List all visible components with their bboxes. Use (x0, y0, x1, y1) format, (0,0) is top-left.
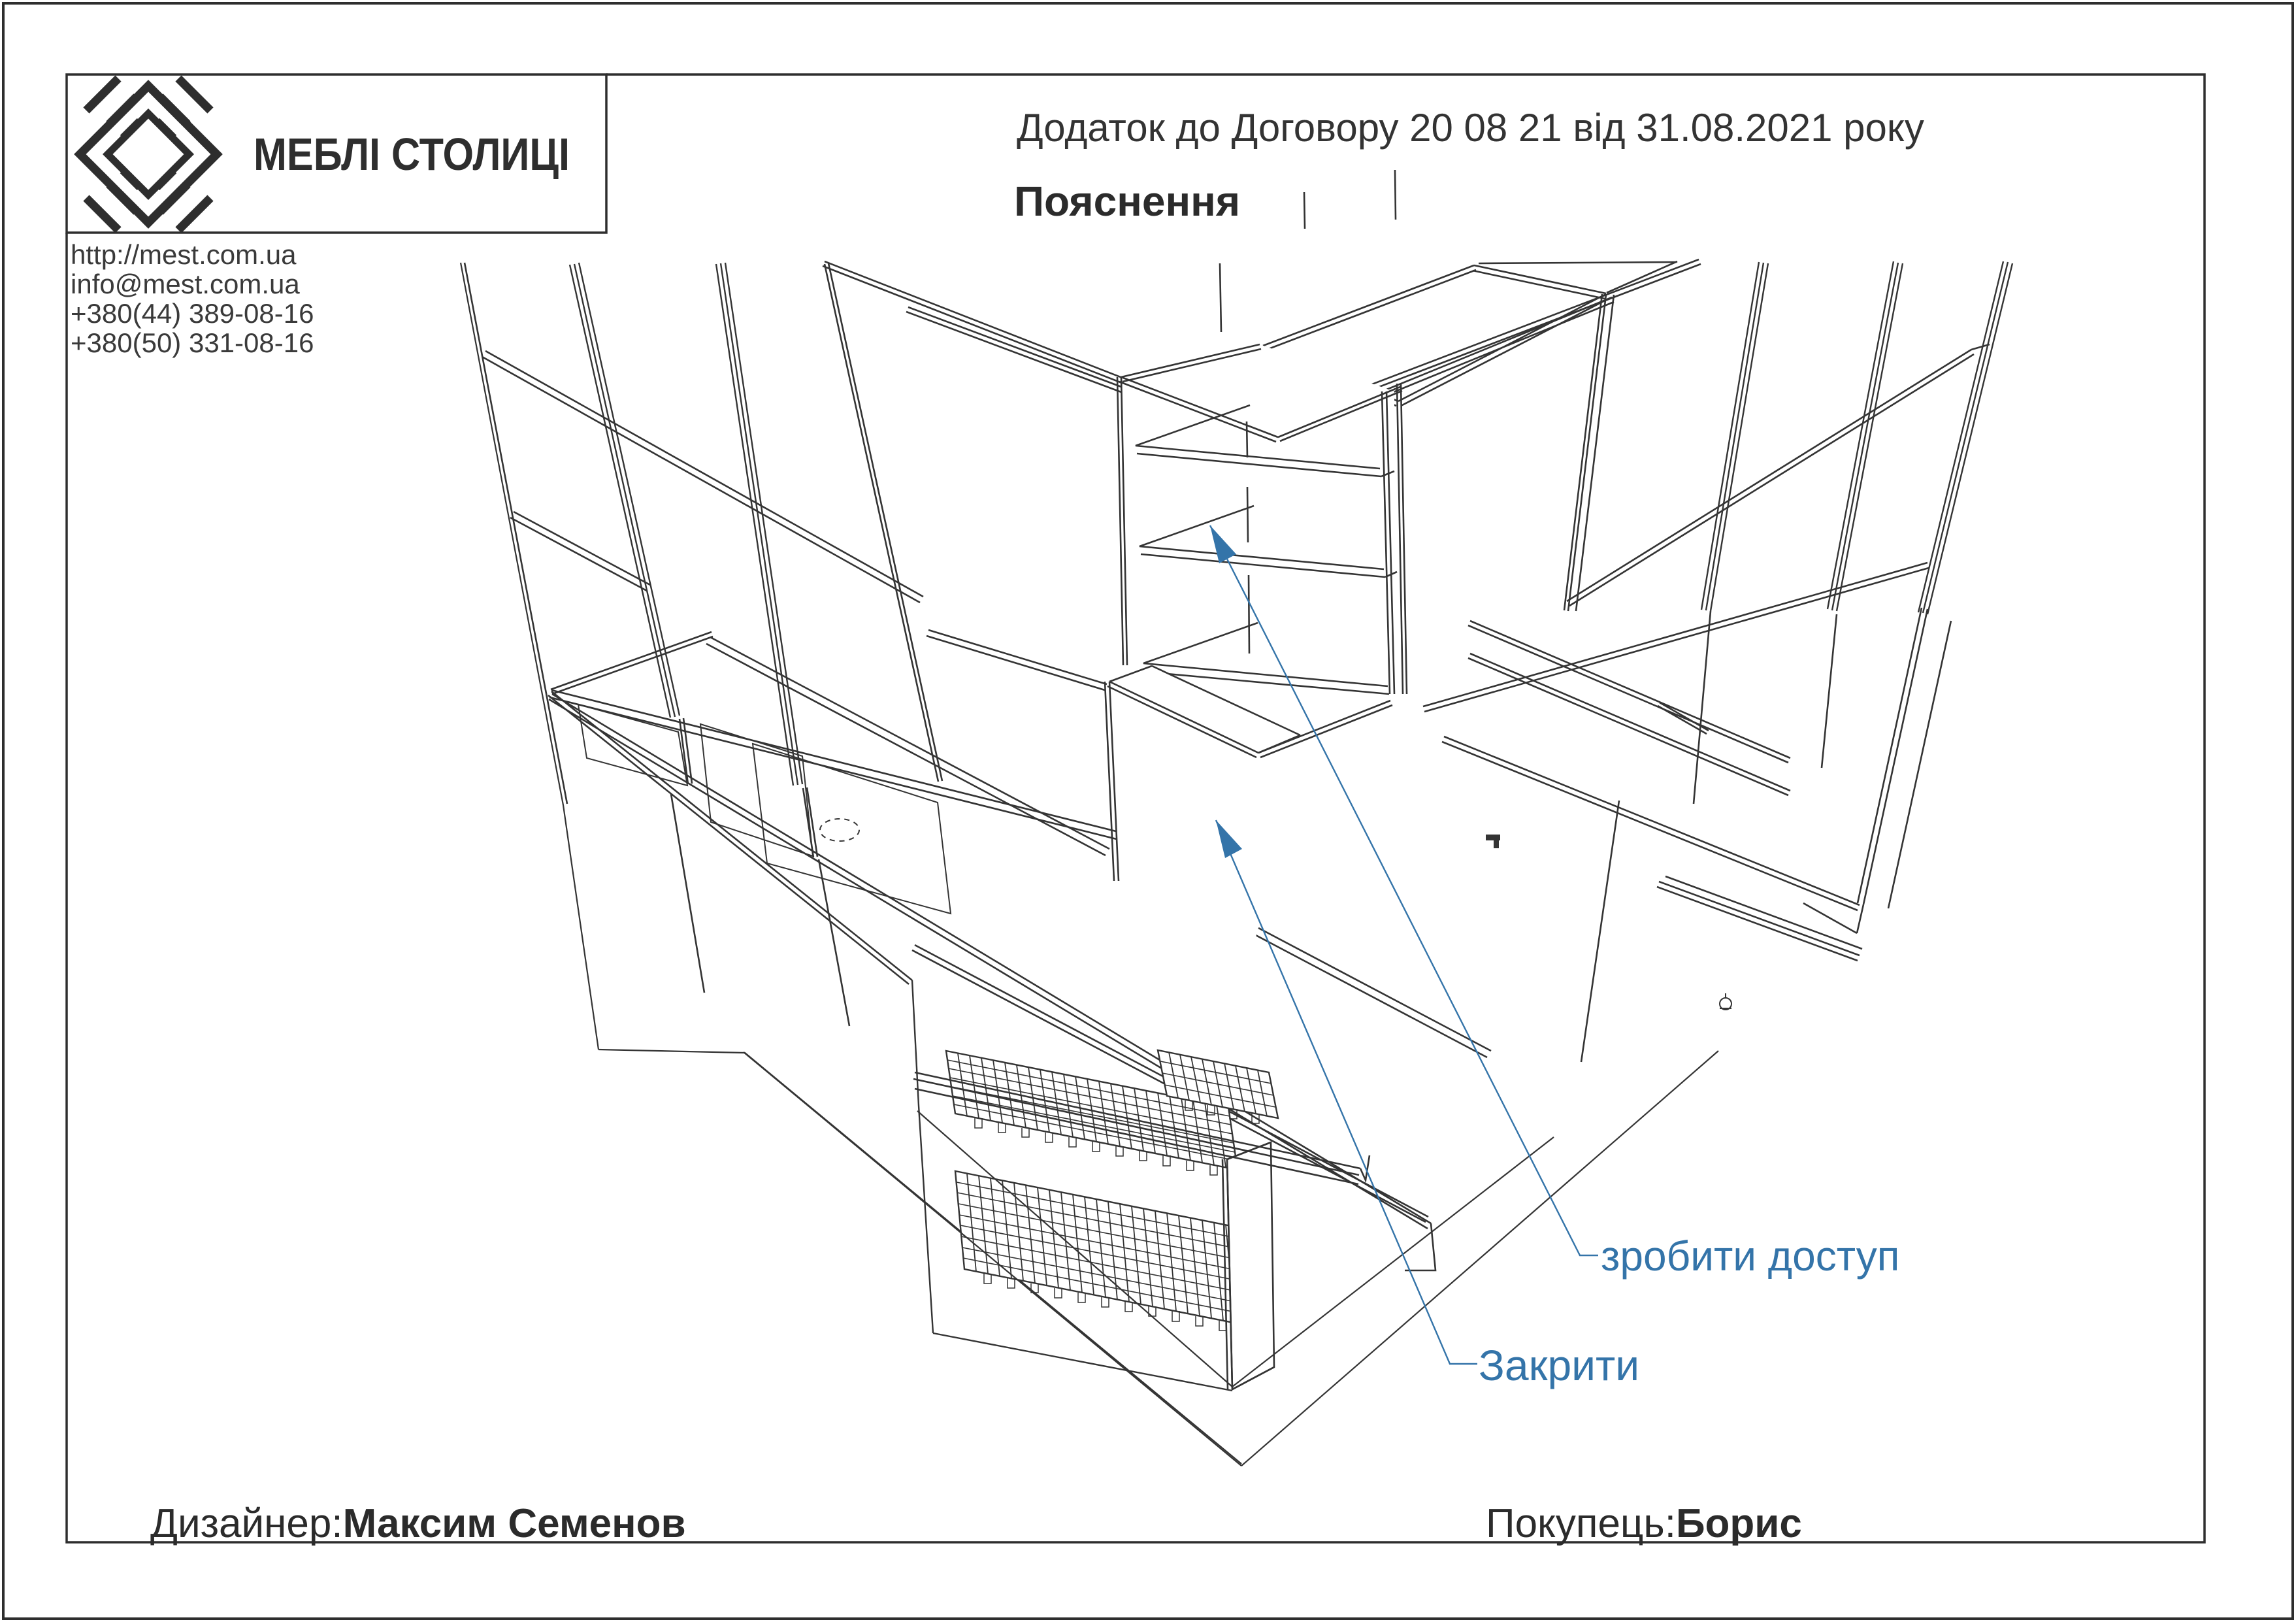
svg-text:info@mest.com.ua: info@mest.com.ua (71, 269, 300, 299)
svg-text:зробити доступ: зробити доступ (1601, 1233, 1899, 1280)
svg-text:Закрити: Закрити (1479, 1341, 1639, 1389)
svg-text:Пояснення: Пояснення (1014, 178, 1240, 225)
svg-text:Дизайнер:Максим Семенов: Дизайнер:Максим Семенов (150, 1501, 686, 1546)
svg-text:МЕБЛІ СТОЛИЦІ: МЕБЛІ СТОЛИЦІ (254, 129, 570, 180)
svg-text:Додаток до Договору 20 08 21 в: Додаток до Договору 20 08 21 від 31.08.2… (1017, 106, 1924, 150)
svg-text:Покупець:Борис: Покупець:Борис (1486, 1501, 1802, 1546)
svg-text:http://mest.com.ua: http://mest.com.ua (71, 239, 297, 270)
svg-text:+380(50) 331-08-16: +380(50) 331-08-16 (71, 327, 314, 358)
svg-text:+380(44) 389-08-16: +380(44) 389-08-16 (71, 298, 314, 329)
